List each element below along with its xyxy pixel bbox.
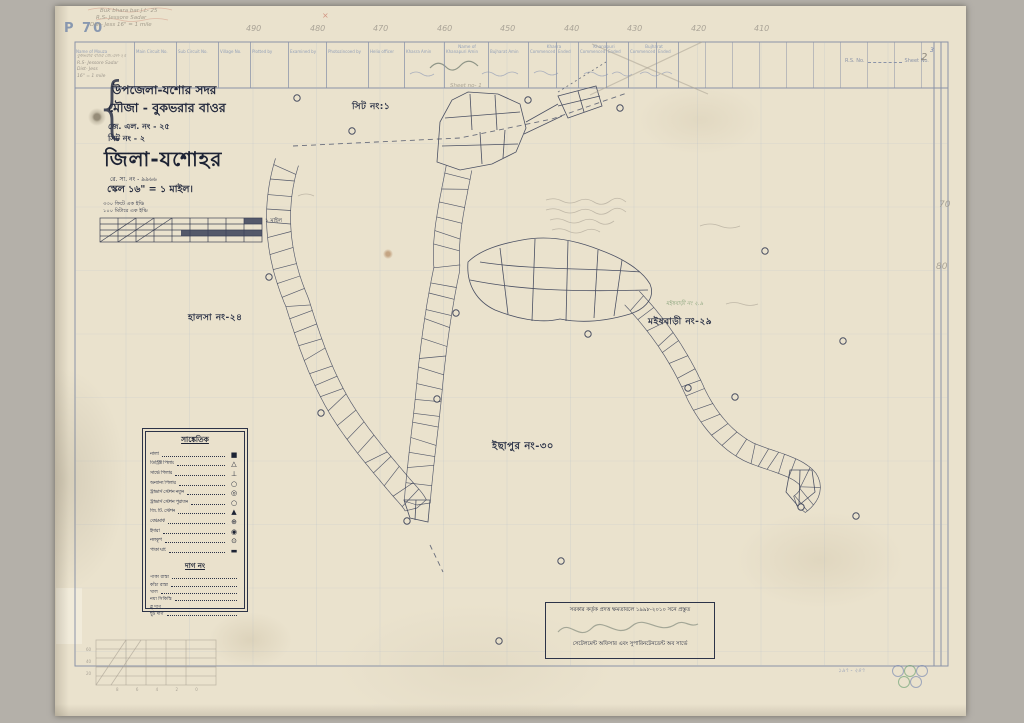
strip-column: Bujharat Amin	[489, 42, 529, 88]
legend-symbol-icon: △	[228, 460, 240, 468]
legend-section2-rows: পাকা রাস্তা কাঁচা রাস্তা খাল নয়া সিকিস্…	[150, 574, 240, 618]
legend-symbol-icon: ⊥	[228, 470, 240, 478]
sheet-number-value: 2	[921, 52, 927, 63]
legend-dotted-leader	[178, 510, 225, 514]
stamp-line1: সরকার কর্তৃক প্রদত্ত ক্ষমতাবলে ১৯৯৮-২০১০…	[551, 607, 709, 615]
sheet-number-alt: 3	[930, 47, 934, 54]
legend-dotted-leader	[177, 462, 225, 466]
strip-column-header: Helio officer	[370, 43, 403, 55]
stamp-line3: সেটেলমেন্ট অফিসার এবং সুপারিনটেনডেন্ট অব…	[551, 641, 709, 649]
grid-number: 490	[246, 24, 261, 33]
printer-circles-mark	[893, 666, 928, 688]
strip-group-label: Bujharat	[645, 44, 663, 49]
legend-title: সাঙ্কেতিক	[150, 435, 240, 447]
grid-number: 420	[691, 24, 706, 33]
strip-group-label: Khasra	[547, 44, 561, 49]
grid-number: 470	[373, 24, 388, 33]
pencil-note-topleft: Buk bhara bar J.L- 25R.S- Jessore SadarD…	[90, 8, 158, 29]
legend-dotted-leader	[191, 501, 225, 505]
printed-scale-bar	[100, 218, 262, 242]
legend-item: ইদারা ◉	[150, 527, 240, 537]
legend-section2-leader	[167, 612, 237, 616]
strip-column-header: Sub Circuit No.	[178, 43, 217, 55]
legend-item-name: নলকূপ	[150, 537, 162, 545]
legend-item-name: পাকা ঘাট	[150, 547, 166, 555]
legend-item: বেঞ্চমার্ক ⊕	[150, 517, 240, 527]
grid-number: 440	[564, 24, 579, 33]
strip-column-header: Photozincoed by	[328, 43, 367, 55]
legend-item-name: সার্ভে পিলার	[150, 470, 172, 478]
plot-cluster-north	[437, 86, 602, 170]
upazila-title: উপজেলা-যশোর সদর	[112, 82, 216, 102]
legend-symbol-icon: ○	[228, 480, 240, 488]
legend-section2-leader	[175, 597, 237, 601]
legend-item: নলকূপ ⊙	[150, 536, 240, 546]
mouza-pencil-label: মইষবাড়ী নং ২.৯	[666, 301, 703, 309]
legend-item-name: নালা	[150, 451, 159, 459]
legend-symbol-icon: ○	[228, 499, 240, 507]
scale-sub2: ১০০ মিটারে এক ইঞ্চি	[103, 208, 148, 216]
legend-item: ডিস্ট্রিক্ট পিলার △	[150, 460, 240, 470]
legend-symbol-icon: ◎	[228, 489, 240, 497]
plot-band-east	[632, 298, 810, 506]
strip-column-header: Village No.	[220, 43, 249, 55]
dashed-boundaries	[293, 62, 627, 572]
legend-item-name: অন্যান্য পিলার	[150, 480, 176, 488]
strip-column-header: Name of Mouza	[76, 43, 133, 55]
strip-column: Plotted by	[251, 42, 289, 88]
legend-section2-leader	[164, 605, 237, 609]
legend-symbol-icon: ⊕	[228, 518, 240, 526]
legend-items: নালা ■ ডিস্ট্রিক্ট পিলার △ সার্ভে পিলার …	[150, 450, 240, 556]
legend-item-name: বেঞ্চমার্ক	[150, 518, 165, 526]
strip-column-header: Bujharat Amin	[490, 43, 527, 55]
legend-section2-row: নয়া সিকিস্তি	[150, 596, 240, 603]
legend-section2-title: দাগ নং	[150, 560, 240, 572]
legend-section2-leader	[161, 590, 237, 594]
pencil-note-line: Dist- Jess 16" = 1 mile	[90, 22, 158, 29]
strip-group-label: Name of	[458, 44, 476, 49]
plot-band-west	[279, 162, 417, 508]
scale-text: স্কেল ১৬" = ১ মাইল।	[107, 183, 193, 198]
legend-section2-leader	[171, 583, 237, 587]
legend-symbol-icon: ⊙	[228, 537, 240, 545]
legend-dotted-leader	[175, 472, 225, 476]
strip-column-header: Examined by	[290, 43, 325, 55]
strip-column-header: Main Circuit No.	[136, 43, 175, 55]
legend-dotted-leader	[169, 549, 225, 553]
grid-number: 80	[936, 262, 947, 272]
legend-item: অন্যান্য পিলার ○	[150, 479, 240, 489]
plot-band-generated-lines	[267, 158, 821, 512]
legend-section2-leader	[172, 575, 237, 579]
grid-number: 450	[500, 24, 515, 33]
grid-number: 460	[437, 24, 452, 33]
mouza-label: সিট নং:১	[352, 99, 390, 114]
grid-number: 430	[627, 24, 642, 33]
mouza-title: মৌজা - বুকভরার বাওর	[108, 100, 226, 120]
grid-number: 70	[939, 200, 950, 210]
legend-item: নালা ■	[150, 450, 240, 460]
legend-item: ট্রাভার্স স্টেশন নতুন ◎	[150, 488, 240, 498]
mouza-label: মইষবাড়ী নং-২৯	[648, 314, 712, 329]
strip-column-header: Plotted by	[252, 43, 287, 55]
legend-item-name: জি. টি. স্টেশন	[150, 508, 175, 516]
pencil-note-line: R.S- Jessore Sadar	[96, 15, 158, 22]
strip-column: Photozincoed by	[327, 42, 369, 88]
strip-column-header: Khasra Amin	[406, 43, 443, 55]
scanned-cadastral-map-sheet: P 70 Buk bhara bar J.L- 25R.S- Jessore S…	[0, 0, 1024, 723]
legend-symbol-icon: ▬	[228, 547, 240, 555]
strip-column: Khasra Amin	[405, 42, 445, 88]
legend-section2-row: কাঁচা রাস্তা	[150, 581, 240, 588]
strip-column: Examined by	[289, 42, 327, 88]
pencil-note-line: Buk bhara bar J.L- 25	[100, 8, 158, 15]
legend-symbol-icon: ■	[228, 451, 240, 459]
legend-dotted-leader	[168, 520, 225, 524]
legend-item-name: ডিস্ট্রিক্ট পিলার	[150, 460, 174, 468]
plot-cluster-south	[404, 470, 815, 522]
legend-item: ট্রাভার্স স্টেশন পুরাতন ○	[150, 498, 240, 508]
grid-number: 480	[310, 24, 325, 33]
stamp-signature-area	[551, 615, 709, 641]
legend-dotted-leader	[163, 530, 225, 534]
print-code-note: ১৯৭ - ২৪৭	[838, 668, 865, 676]
legend-item: সার্ভে পিলার ⊥	[150, 469, 240, 479]
strip-column: Village No.	[219, 42, 251, 88]
certification-stamp-box: সরকার কর্তৃক প্রদত্ত ক্ষমতাবলে ১৯৯৮-২০১০…	[545, 602, 715, 659]
mouza-label: হালসা নং-২৪	[188, 310, 242, 325]
rs-dotted-leader	[868, 59, 902, 63]
red-check-mark: ×	[322, 11, 329, 20]
legend-section2-name: ছুট দাগ	[150, 610, 164, 618]
pencil-scale-left-numbers: 60 40 20	[86, 644, 95, 680]
legend-section2-row: ছুট দাগ	[150, 610, 240, 617]
legend-symbol-icon: ◉	[228, 528, 240, 536]
rs-no-label: R.S. No.	[845, 58, 865, 64]
legend-item: পাকা ঘাট ▬	[150, 546, 240, 556]
pencil-scale-bottom-numbers: 8 6 4 2 0	[116, 687, 206, 692]
pencil-scale-grid	[96, 640, 216, 685]
legend-dotted-leader	[187, 491, 225, 495]
rs-sheet-line: R.S. No. Sheet No.	[845, 58, 929, 64]
legend-symbol-icon: ▲	[228, 508, 240, 516]
legend-item-name: ট্রাভার্স স্টেশন নতুন	[150, 489, 184, 497]
legend-dotted-leader	[165, 539, 225, 543]
strip-empty-cells	[679, 42, 930, 88]
legend-item-name: ইদারা	[150, 528, 160, 536]
legend-box: সাঙ্কেতিক নালা ■ ডিস্ট্রিক্ট পিলার △ সার…	[142, 428, 248, 612]
legend-item: জি. টি. স্টেশন ▲	[150, 508, 240, 518]
legend-item-name: ট্রাভার্স স্টেশন পুরাতন	[150, 499, 188, 507]
legend-dotted-leader	[162, 453, 225, 457]
strip-group-label: Khanapuri	[593, 44, 614, 49]
legend-dotted-leader	[179, 482, 225, 486]
scale-bar-label: ১ মাইল	[265, 218, 282, 226]
grid-number: 410	[754, 24, 769, 33]
traverse-stations	[266, 95, 859, 644]
mouza-label: ইছাপুর নং-৩০	[492, 439, 554, 456]
strip-column: Helio officer	[369, 42, 405, 88]
plot-cluster-junction	[468, 238, 652, 321]
strip-entry-line: বুকভরার বাওর জে.এল-২৫	[77, 54, 126, 61]
